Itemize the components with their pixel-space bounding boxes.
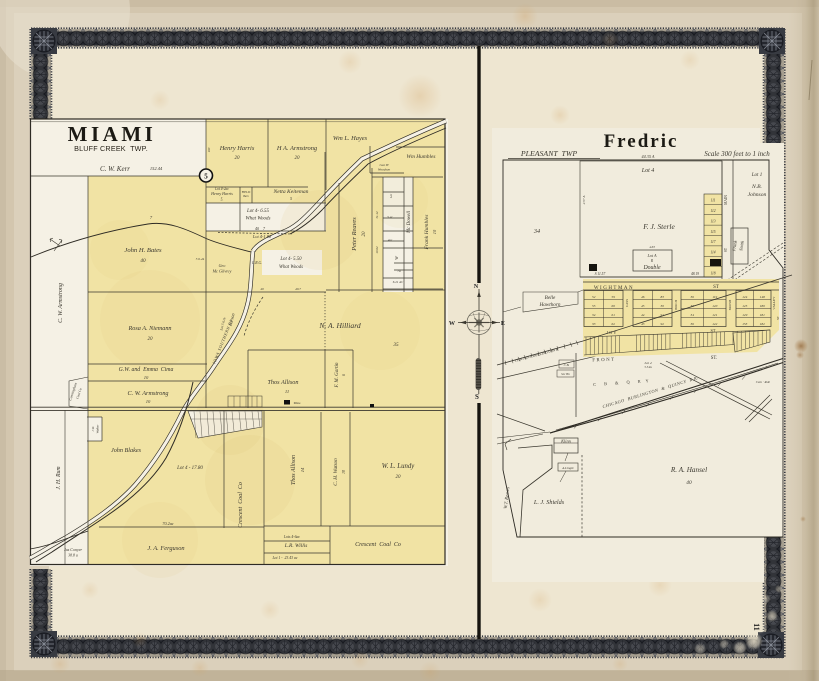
svg-text:N.B.: N.B.	[751, 184, 762, 190]
svg-text:Wm L. Hayes: Wm L. Hayes	[333, 135, 368, 142]
svg-text:BIRCH: BIRCH	[674, 299, 678, 309]
svg-text:40: 40	[140, 257, 146, 264]
svg-text:VALLEY: VALLEY	[772, 296, 776, 310]
svg-text:Lot A: Lot A	[646, 253, 657, 258]
svg-text:148: 148	[760, 295, 765, 299]
svg-text:44.35 A: 44.35 A	[642, 154, 655, 159]
svg-text:F. J. Sterle: F. J. Sterle	[642, 222, 675, 231]
svg-text:Cem · R.R.: Cem · R.R.	[756, 380, 771, 384]
svg-text:60: 60	[612, 304, 616, 308]
svg-text:11: 11	[752, 623, 761, 631]
svg-text:5.54A: 5.54A	[644, 365, 651, 369]
svg-text:120: 120	[712, 304, 717, 308]
svg-text:S: S	[475, 393, 479, 401]
svg-text:152.44: 152.44	[150, 166, 163, 171]
svg-text:153: 153	[742, 322, 747, 326]
svg-text:BLUFF CREEK TWP.: BLUFF CREEK TWP.	[74, 144, 148, 153]
svg-text:10: 10	[144, 375, 149, 380]
svg-text:118: 118	[710, 271, 715, 275]
svg-text:Crescent Coal Co: Crescent Coal Co	[355, 542, 401, 548]
svg-text:20: 20	[362, 231, 367, 237]
svg-text:ST: ST	[776, 316, 780, 320]
svg-text:40.7: 40.7	[295, 287, 301, 291]
svg-text:160: 160	[207, 147, 211, 152]
svg-text:Barn: Barn	[243, 195, 249, 198]
svg-text:10: 10	[341, 470, 346, 474]
svg-text:115: 115	[710, 230, 715, 234]
svg-text:Lot 4- 6.55: Lot 4- 6.55	[246, 209, 270, 214]
svg-text:92: 92	[661, 322, 665, 326]
svg-text:Jas Conyer: Jas Conyer	[64, 547, 83, 552]
svg-text:7a: 7a	[397, 269, 401, 273]
svg-text:Hawthorn: Hawthorn	[538, 302, 560, 308]
svg-text:Mine: Mine	[294, 401, 301, 405]
svg-text:PLEASANT TWP: PLEASANT TWP	[520, 149, 577, 158]
svg-text:Lots 4-6ac: Lots 4-6ac	[283, 535, 300, 539]
svg-text:125: 125	[742, 304, 747, 308]
svg-text:30: 30	[661, 304, 665, 308]
svg-text:C. W. Armstrong: C. W. Armstrong	[127, 390, 168, 397]
svg-text:Henry Harris: Henry Harris	[210, 191, 233, 196]
svg-text:20: 20	[295, 156, 301, 161]
svg-text:180: 180	[760, 304, 765, 308]
svg-text:Netta Keiteman: Netta Keiteman	[273, 189, 309, 195]
svg-text:117: 117	[710, 240, 715, 244]
svg-text:FIELD: FIELD	[242, 190, 251, 194]
svg-text:34: 34	[691, 313, 695, 317]
svg-text:35: 35	[393, 342, 399, 348]
svg-text:J. H. Rum: J. H. Rum	[56, 466, 62, 489]
svg-text:11: 11	[285, 389, 289, 394]
svg-text:Henry Harris: Henry Harris	[219, 145, 255, 152]
svg-text:Belle: Belle	[545, 295, 556, 301]
svg-text:Thos Allison: Thos Allison	[267, 379, 298, 386]
svg-text:6: 6	[341, 374, 346, 376]
svg-text:Rosa A. Niemann: Rosa A. Niemann	[127, 325, 171, 332]
svg-text:Walker: Walker	[96, 424, 100, 434]
svg-text:CASS: CASS	[625, 299, 629, 307]
svg-text:Lot 4-1.88: Lot 4-1.88	[252, 234, 272, 239]
svg-text:121: 121	[712, 313, 717, 317]
svg-text:52: 52	[592, 295, 596, 299]
svg-text:Frank Humbles: Frank Humbles	[424, 215, 430, 251]
svg-text:FRONT: FRONT	[592, 358, 615, 364]
svg-text:C.B.: C.B.	[564, 363, 570, 367]
svg-text:Thos Allison: Thos Allison	[291, 455, 297, 485]
svg-text:5: 5	[204, 173, 208, 181]
svg-text:70.2ac: 70.2ac	[162, 521, 173, 526]
svg-text:ST: ST	[713, 285, 719, 290]
svg-text:5 6.44: 5 6.44	[196, 257, 205, 261]
svg-text:N. A. Hilliard: N. A. Hilliard	[318, 321, 361, 330]
svg-text:BRUSH: BRUSH	[728, 299, 732, 310]
svg-text:46: 46	[641, 295, 645, 299]
svg-text:Klinn: Klinn	[560, 439, 572, 444]
svg-text:5: 5	[290, 196, 292, 201]
svg-text:5 ac: 5 ac	[387, 215, 393, 219]
svg-text:Lot: Lot	[389, 194, 393, 199]
svg-text:14: 14	[300, 467, 305, 472]
svg-text:2.57 A: 2.57 A	[582, 195, 586, 205]
svg-text:C.R.G.: C.R.G.	[252, 261, 262, 265]
svg-text:Scale 300 feet to 1 inch: Scale 300 feet to 1 inch	[704, 150, 770, 158]
svg-text:111: 111	[711, 199, 716, 203]
svg-text:Woodson: Woodson	[378, 168, 391, 172]
svg-text:36: 36	[691, 322, 695, 326]
svg-text:33: 33	[592, 322, 596, 326]
svg-text:40 7: 40 7	[255, 226, 266, 231]
svg-text:31.12: 31.12	[375, 211, 379, 219]
svg-text:C. W. Kerr: C. W. Kerr	[100, 165, 130, 173]
svg-text:C. H. Watson: C. H. Watson	[333, 458, 339, 486]
svg-text:34: 34	[533, 228, 540, 235]
svg-text:E: E	[501, 320, 505, 327]
svg-text:55: 55	[592, 304, 596, 308]
svg-text:83: 83	[661, 295, 665, 299]
svg-text:Mc Dowell: Mc Dowell	[407, 210, 412, 234]
svg-text:38.8 a: 38.8 a	[68, 554, 78, 558]
svg-text:6.21 AC: 6.21 AC	[393, 280, 404, 284]
svg-text:61: 61	[612, 313, 616, 317]
svg-text:Lot 4: Lot 4	[641, 167, 655, 174]
svg-text:Johnson: Johnson	[748, 192, 767, 198]
svg-text:S 11.57: S 11.57	[595, 272, 606, 276]
svg-text:Geo: Geo	[219, 263, 226, 268]
svg-text:34: 34	[592, 313, 596, 317]
svg-text:129: 129	[742, 313, 747, 317]
svg-text:181: 181	[760, 313, 765, 317]
svg-text:Lot 4 - 17.80: Lot 4 - 17.80	[176, 466, 203, 471]
svg-text:20: 20	[148, 337, 154, 342]
svg-text:L.R. Willis: L.R. Willis	[284, 543, 308, 549]
svg-text:112: 112	[710, 209, 715, 213]
svg-text:J.W.: J.W.	[91, 426, 95, 432]
svg-text:20: 20	[396, 475, 402, 480]
svg-text:MIAMI: MIAMI	[68, 122, 157, 146]
svg-text:122: 122	[712, 322, 717, 326]
svg-text:What Woods: What Woods	[279, 265, 303, 270]
svg-text:182: 182	[760, 322, 765, 326]
svg-text:A.Lingle: A.Lingle	[561, 466, 574, 470]
svg-text:10: 10	[146, 399, 151, 404]
svg-text:W. L. Lundy: W. L. Lundy	[382, 463, 416, 470]
svg-text:W: W	[449, 320, 456, 327]
svg-text:N: N	[474, 283, 479, 290]
svg-text:48.19: 48.19	[691, 272, 699, 276]
svg-text:Double: Double	[642, 265, 660, 271]
svg-text:Fredric: Fredric	[604, 131, 679, 152]
svg-text:C. W. Armstrong: C. W. Armstrong	[58, 283, 64, 323]
svg-text:Lot 1: Lot 1	[751, 173, 762, 178]
svg-text:113: 113	[710, 219, 715, 223]
svg-text:4ac: 4ac	[388, 238, 393, 242]
svg-text:Peter Reaves: Peter Reaves	[351, 217, 358, 252]
svg-text:Geo H: Geo H	[380, 163, 389, 167]
svg-text:John H. Bates: John H. Bates	[124, 247, 162, 254]
svg-text:G.W. and Emma Cima: G.W. and Emma Cima	[119, 367, 174, 373]
svg-text:20: 20	[235, 156, 241, 161]
svg-text:Lot 1 - 23.43 ac: Lot 1 - 23.43 ac	[271, 556, 297, 560]
svg-text:Lot 4- 5.50: Lot 4- 5.50	[279, 257, 302, 262]
svg-text:45: 45	[641, 304, 645, 308]
svg-text:ST.: ST.	[711, 356, 717, 361]
svg-text:36: 36	[691, 295, 695, 299]
svg-text:5.: 5.	[221, 198, 224, 202]
svg-text:Crescent Coal Co: Crescent Coal Co	[238, 482, 244, 528]
svg-text:62: 62	[612, 322, 616, 326]
svg-text:J. A. Ferguson: J. A. Ferguson	[147, 545, 184, 552]
svg-text:John Blakes: John Blakes	[111, 447, 142, 454]
svg-text:124: 124	[742, 295, 747, 299]
svg-text:10.62: 10.62	[375, 246, 379, 254]
svg-text:What Woods: What Woods	[246, 217, 271, 222]
svg-text:Wm Humbles: Wm Humbles	[407, 154, 436, 160]
svg-text:59: 59	[612, 295, 616, 299]
svg-text:R. A. Hansel: R. A. Hansel	[670, 466, 707, 474]
svg-text:L. J. Shields: L. J. Shields	[533, 499, 565, 506]
svg-text:Sec Ho: Sec Ho	[561, 372, 570, 376]
svg-text:40: 40	[686, 480, 692, 486]
svg-text:4.63: 4.63	[649, 245, 655, 249]
svg-text:F. M. Gartin: F. M. Gartin	[335, 362, 340, 388]
svg-text:44: 44	[641, 313, 645, 317]
svg-text:H A. Armstrong: H A. Armstrong	[276, 145, 318, 152]
svg-text:40: 40	[260, 287, 264, 291]
svg-text:MAIN: MAIN	[724, 195, 728, 205]
svg-text:114: 114	[710, 251, 715, 255]
svg-text:Mc Gilvrey: Mc Gilvrey	[212, 269, 232, 274]
